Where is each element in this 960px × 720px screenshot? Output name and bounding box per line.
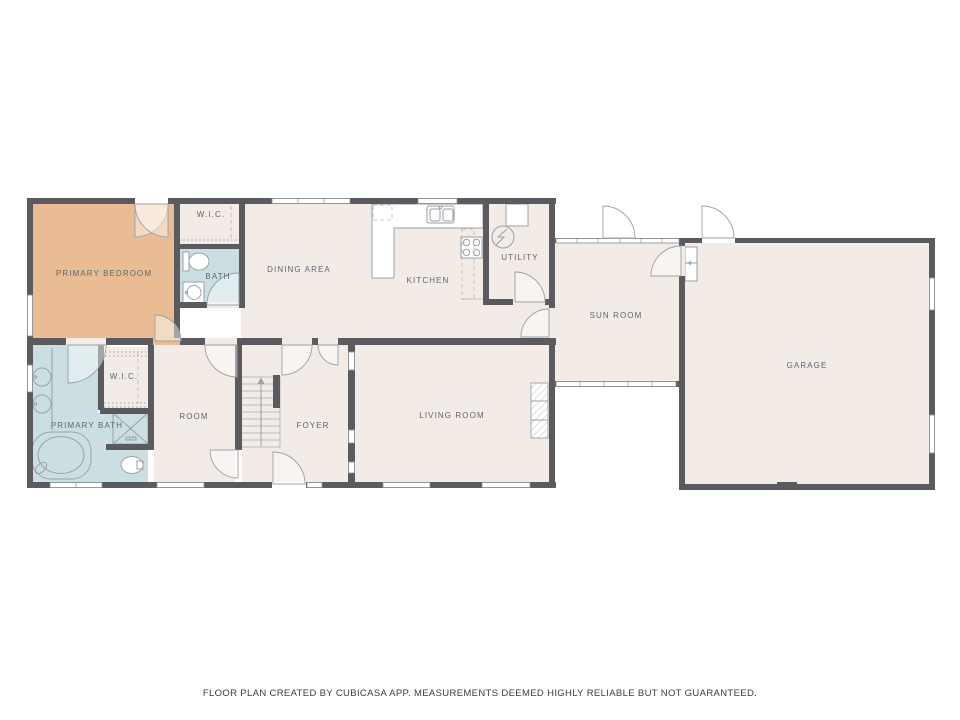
- window: [307, 483, 322, 488]
- wall-shower-bottom: [106, 444, 150, 450]
- window: [418, 199, 457, 204]
- wall-wic-room-divider: [148, 345, 154, 450]
- room-label-sun-room: SUN ROOM: [590, 311, 643, 320]
- window: [349, 430, 355, 443]
- entry-step: [685, 247, 697, 281]
- wall-utility-left: [483, 198, 489, 305]
- door-opening: [318, 338, 338, 345]
- wall-living-top: [348, 338, 556, 345]
- window-band: [556, 382, 676, 387]
- fireplace-icon: [531, 383, 548, 438]
- room-label-foyer: FOYER: [296, 421, 329, 430]
- window: [272, 199, 350, 204]
- wall-wic-lower-bottom: [100, 408, 154, 414]
- room-label-primary-bedroom: PRIMARY BEDROOM: [56, 269, 152, 278]
- window: [349, 462, 355, 473]
- door-opening: [205, 338, 237, 345]
- room-label-room: ROOM: [179, 412, 208, 421]
- door-opening: [702, 238, 735, 243]
- room-label-wic-upper: W.I.C.: [197, 210, 225, 219]
- door-opening: [282, 338, 312, 345]
- toilet-tank-icon: [183, 252, 189, 271]
- room-label-kitchen: KITCHEN: [407, 276, 450, 285]
- wall-garage-bottom: [679, 484, 935, 490]
- door-opening: [66, 338, 106, 345]
- disclaimer-text: FLOOR PLAN CREATED BY CUBICASA APP. MEAS…: [0, 688, 960, 699]
- wall-wic-bath-divider: [174, 244, 245, 249]
- door-opening: [135, 198, 168, 204]
- window: [28, 295, 33, 336]
- window: [930, 278, 935, 310]
- floor-plan-svg: PRIMARY BEDROOM W.I.C. BATH DINING AREA …: [0, 0, 960, 720]
- room-label-living-room: LIVING ROOM: [419, 411, 484, 420]
- wall-wic-bath-right: [239, 202, 245, 308]
- window-band: [556, 239, 679, 244]
- water-heater-icon: [506, 204, 528, 226]
- wall-bedroom-right: [174, 202, 180, 338]
- toilet-icon: [121, 457, 143, 474]
- door-opening: [549, 308, 555, 338]
- floor-plan-page: PRIMARY BEDROOM W.I.C. BATH DINING AREA …: [0, 0, 960, 720]
- room-label-dining-area: DINING AREA: [267, 265, 331, 274]
- room-label-garage: GARAGE: [787, 361, 828, 370]
- toilet-icon: [189, 253, 209, 270]
- wall-stair-stub: [273, 375, 280, 408]
- room-label-bath: BATH: [205, 272, 230, 281]
- exterior-door-swing: [702, 206, 734, 238]
- room-label-wic-lower: W.I.C.: [110, 372, 138, 381]
- window: [28, 365, 33, 392]
- room-label-primary-bath: PRIMARY BATH: [51, 421, 123, 430]
- window: [383, 483, 430, 488]
- window: [930, 415, 935, 453]
- room-label-utility: UTILITY: [501, 253, 538, 262]
- window: [482, 483, 530, 488]
- wall-garage-post: [777, 482, 797, 490]
- window: [157, 483, 204, 488]
- exterior-door-swing: [603, 206, 635, 238]
- window: [349, 352, 355, 370]
